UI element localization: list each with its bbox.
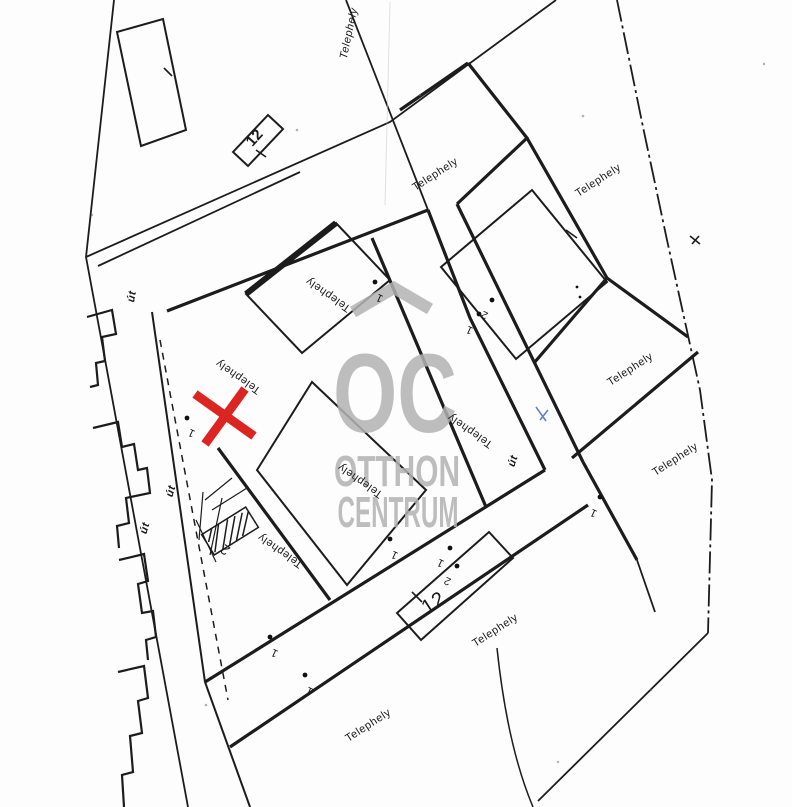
point-marker-label: 1 <box>435 556 446 569</box>
parcel-label: Telephely <box>304 275 353 315</box>
point-marker-label: 2 <box>442 574 453 587</box>
parcel-label: Telephely <box>650 440 700 478</box>
point-marker-label: 1 <box>269 646 280 659</box>
plot-number: 12 <box>243 126 267 150</box>
point-marker-dot <box>490 298 495 303</box>
center-road-continuation <box>583 462 637 560</box>
point-marker-label: 1 <box>588 506 599 519</box>
watermark-name-line2: CENTRUM <box>338 488 459 537</box>
point-marker-dot <box>185 416 190 421</box>
point-marker-dot <box>268 635 273 640</box>
point-marker-dot <box>455 564 460 569</box>
bottom-curved-line <box>497 648 533 807</box>
point-marker-dot <box>477 312 482 317</box>
parcel-label: Telephely <box>343 706 393 744</box>
small-dot <box>579 296 582 299</box>
parcel-divider-west <box>218 448 330 600</box>
cadastral-map-drawing: OC OTTHON CENTRUM Telephely Telephely Te… <box>0 0 792 807</box>
parcel-label: Telephely <box>605 350 655 388</box>
point-marker-dot <box>448 546 453 551</box>
east-parcel-divider-upper <box>607 278 688 337</box>
right-outer-boundary-dashdot <box>617 0 712 633</box>
parcel-label: Telephely <box>573 161 623 199</box>
point-marker-dot <box>598 495 603 500</box>
point-marker-dot <box>373 280 378 285</box>
northeast-block-west-corner <box>457 63 527 204</box>
road-label: út <box>125 289 139 303</box>
point-marker-label: 1 <box>186 426 197 439</box>
corridor-thick-edge <box>400 63 468 110</box>
point-marker-label: 1 <box>304 684 315 697</box>
road-label: út <box>506 453 521 468</box>
parcel-label: Telephely <box>338 6 361 60</box>
stepped-building-4 <box>118 666 148 807</box>
point-marker-label: 1 <box>389 548 400 561</box>
building-footprints <box>117 19 607 640</box>
point-marker-label: 1 <box>464 323 475 336</box>
square-parcel-northeast-edge <box>527 138 607 278</box>
red-x-stroke-2 <box>205 389 245 444</box>
stepped-building-outlines <box>87 310 156 807</box>
diagonal-top-boundary-line <box>86 0 556 257</box>
blue-pen-mark <box>536 407 548 421</box>
southeast-boundary-line <box>538 633 708 801</box>
tick-cross-mark <box>690 236 700 244</box>
parcel-label: Telephely <box>214 357 263 397</box>
inner-parallel-line <box>98 172 300 266</box>
red-x-marker <box>195 389 254 444</box>
watermark-logo-text: OC <box>333 331 457 456</box>
stepped-building-1 <box>87 310 116 387</box>
road-label: út <box>138 520 153 535</box>
point-marker-dot <box>303 673 308 678</box>
road-labels: út út út út <box>125 289 521 535</box>
scanned-cadastral-map-page: OC OTTHON CENTRUM Telephely Telephely Te… <box>0 0 792 807</box>
parcel-label: Telephely <box>256 531 305 571</box>
road-tail-line <box>637 560 655 612</box>
building-top-left <box>117 19 186 146</box>
roof-chevron-icon <box>353 288 430 312</box>
point-marker-dot <box>388 537 393 542</box>
watermark-group: OC OTTHON CENTRUM <box>333 288 460 537</box>
tick-mark <box>164 68 172 76</box>
left-outer-boundary-line <box>86 0 188 807</box>
small-dot <box>576 286 579 289</box>
parcel-label: Telephely <box>470 611 520 649</box>
parcel-label: Telephely <box>410 155 460 193</box>
